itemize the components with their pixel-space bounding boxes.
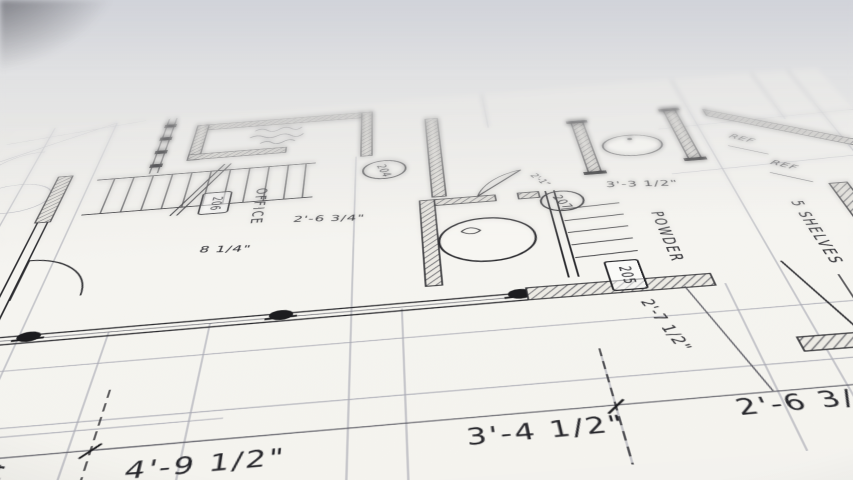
blueprint-photo: 206 OFFICE 2'-6 3/4" 8 1/4" 204 xyxy=(0,0,853,480)
office-offset-dim: 8 1/4" xyxy=(197,244,252,255)
office-width-dim: 2'-6 3/4" xyxy=(292,213,366,224)
bath-width-dim: 3'-3 1/2" xyxy=(605,179,679,189)
perspective-scene: 206 OFFICE 2'-6 3/4" 8 1/4" 204 xyxy=(0,0,853,480)
floor-plan-drawing: 206 OFFICE 2'-6 3/4" 8 1/4" 204 xyxy=(0,68,853,480)
floor-plan-sheet: 206 OFFICE 2'-6 3/4" 8 1/4" 204 xyxy=(0,68,853,480)
